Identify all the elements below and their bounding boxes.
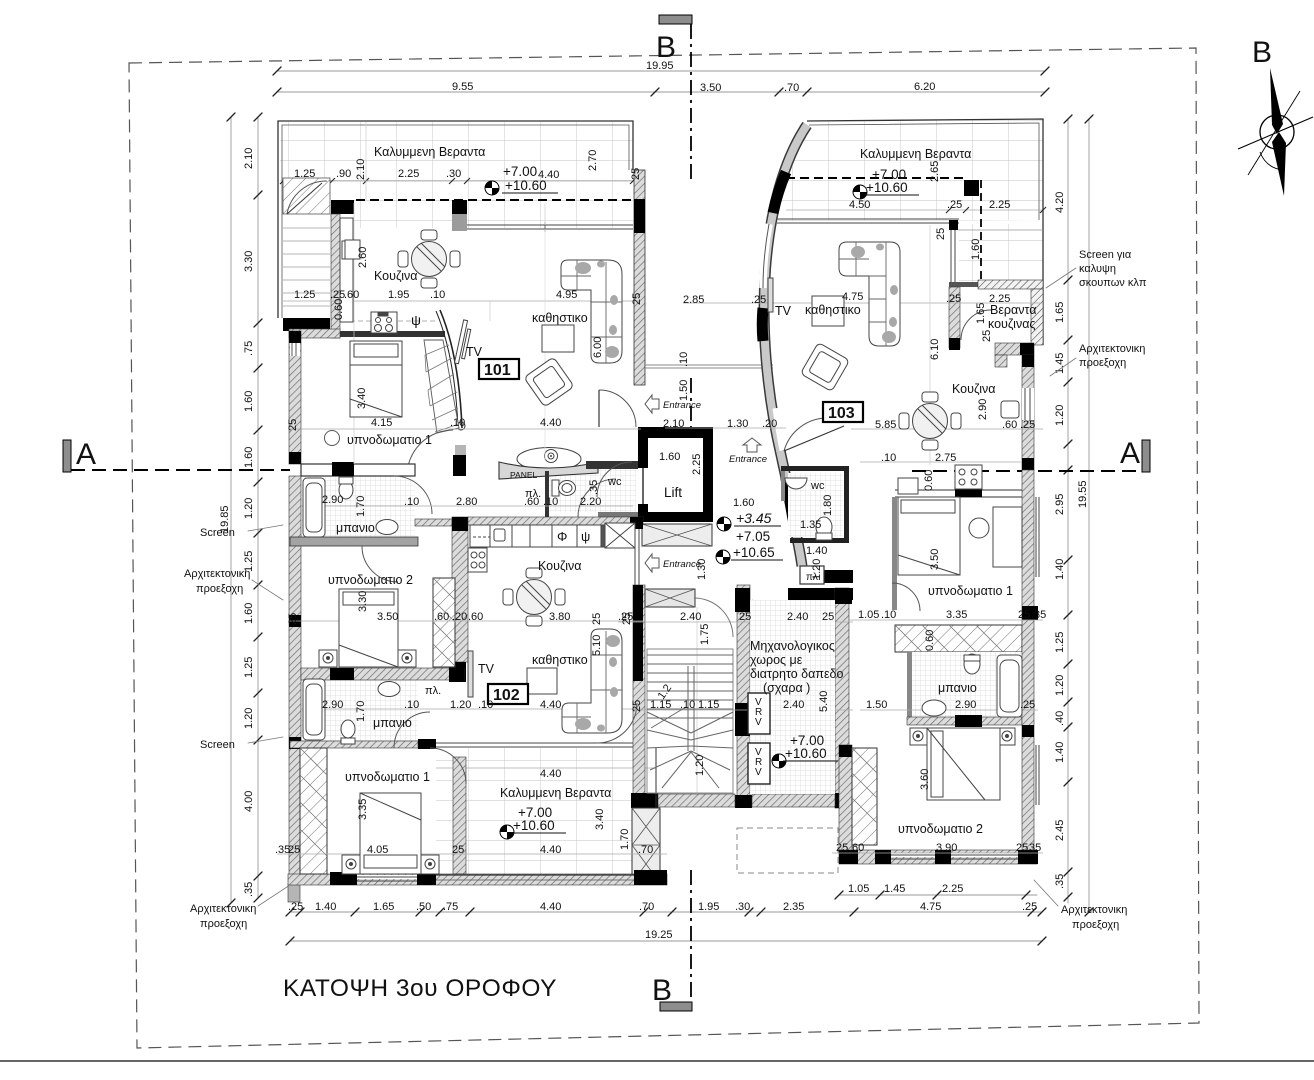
svg-text:Αρχιτεκτονικη: Αρχιτεκτονικη [190,903,256,915]
svg-text:Καλυμμενη Βεραντα: Καλυμμενη Βεραντα [374,145,485,159]
svg-text:1.30: 1.30 [727,418,748,430]
svg-text:5.85: 5.85 [875,419,896,431]
svg-text:3.40: 3.40 [356,388,368,409]
svg-text:.60: .60 [524,496,539,508]
svg-text:.50: .50 [416,901,431,913]
svg-text:+10.60: +10.60 [785,746,827,761]
svg-text:προεξοχη: προεξοχη [1079,357,1126,369]
svg-text:wc: wc [607,476,622,488]
svg-text:2.20: 2.20 [580,496,601,508]
svg-text:Entrance: Entrance [729,454,767,465]
svg-text:0.60: 0.60 [923,470,935,491]
svg-text:1.35: 1.35 [800,519,821,531]
svg-text:.20: .20 [762,418,777,430]
svg-text:35: 35 [1029,842,1041,854]
svg-text:2.10: 2.10 [663,418,684,430]
svg-text:1.40: 1.40 [1054,559,1066,580]
svg-text:.10: .10 [680,699,695,711]
svg-text:.35: .35 [243,882,255,897]
svg-text:.40: .40 [1054,711,1066,726]
svg-text:3.60: 3.60 [919,769,931,790]
svg-text:προεξοχη: προεξοχη [196,583,243,595]
svg-text:1.60: 1.60 [659,451,680,463]
svg-text:1.75: 1.75 [699,624,711,645]
svg-text:.25: .25 [1022,901,1037,913]
svg-text:3.40: 3.40 [594,809,606,830]
svg-text:1.70: 1.70 [355,701,367,722]
svg-text:2.80: 2.80 [456,496,477,508]
svg-text:102: 102 [493,687,520,704]
svg-text:2.40: 2.40 [680,611,701,623]
svg-text:.30: .30 [446,168,461,180]
svg-text:υπνοδωματιο 1: υπνοδωματιο 1 [347,433,432,447]
svg-text:.35: .35 [588,480,600,495]
svg-text:καθηστικο: καθηστικο [805,303,861,317]
svg-text:1.45: 1.45 [884,883,905,895]
svg-text:25: 25 [935,228,947,240]
svg-text:1.25: 1.25 [243,657,255,678]
svg-text:Κουζινα: Κουζινα [952,382,996,396]
svg-text:+7.05: +7.05 [736,529,770,544]
svg-text:.35: .35 [1031,609,1046,621]
svg-text:πλ.: πλ. [425,685,441,697]
svg-text:.60: .60 [434,611,449,623]
svg-text:19.55: 19.55 [1077,480,1089,508]
svg-text:25: 25 [288,844,300,856]
svg-text:1.20: 1.20 [1054,675,1066,696]
svg-text:.10: .10 [881,609,896,621]
svg-text:9.55: 9.55 [452,81,473,93]
svg-text:Screen για: Screen για [1079,249,1132,261]
svg-text:μπανιο: μπανιο [373,716,412,730]
svg-text:.60: .60 [1002,419,1017,431]
svg-text:A: A [76,438,96,471]
svg-text:Μηχανολογικος: Μηχανολογικος [750,639,835,653]
svg-text:μπανιο: μπανιο [938,681,977,695]
svg-text:ψ: ψ [581,529,590,544]
svg-text:1.40: 1.40 [315,901,336,913]
svg-text:1.20: 1.20 [1054,405,1066,426]
svg-text:2.40: 2.40 [783,699,804,711]
svg-text:ψ: ψ [411,312,421,328]
svg-text:ΚΑΤΟΨΗ 3ου ΟΡΟΦΟΥ: ΚΑΤΟΨΗ 3ου ΟΡΟΦΟΥ [283,975,557,1002]
svg-text:.60: .60 [468,611,483,623]
svg-text:Βεραντα: Βεραντα [990,303,1036,317]
svg-text:1.50: 1.50 [866,699,887,711]
svg-text:.25: .25 [946,293,961,305]
svg-text:+10.60: +10.60 [505,178,547,193]
svg-text:Κουζινα: Κουζινα [538,559,582,573]
svg-text:2.25: 2.25 [691,454,703,475]
svg-text:2.75: 2.75 [935,452,956,464]
svg-text:4.15: 4.15 [371,417,392,429]
svg-text:.25: .25 [751,294,766,306]
svg-text:25: 25 [739,611,751,623]
svg-text:.75: .75 [243,341,255,356]
svg-text:+10.60: +10.60 [866,180,908,195]
svg-text:V: V [755,717,762,728]
svg-text:σκουπων κλπ: σκουπων κλπ [1079,277,1147,289]
svg-text:1.25: 1.25 [294,168,315,180]
svg-text:.25: .25 [618,611,633,623]
svg-text:1.95: 1.95 [698,901,719,913]
svg-text:1.50: 1.50 [678,380,690,401]
svg-text:4.05: 4.05 [367,844,388,856]
svg-text:+3.45: +3.45 [736,510,772,526]
svg-text:.25: .25 [288,901,303,913]
svg-text:καθηστικο: καθηστικο [532,311,588,325]
svg-text:3.80: 3.80 [549,611,570,623]
svg-text:PANEL: PANEL [510,470,538,480]
svg-text:προεξοχη: προεξοχη [1072,919,1119,931]
svg-text:προεξοχη: προεξοχη [200,918,247,930]
svg-text:2.65: 2.65 [929,161,941,182]
svg-text:1.05: 1.05 [858,609,879,621]
svg-text:25: 25 [1016,842,1028,854]
svg-text:3.35: 3.35 [357,799,369,820]
svg-text:1.25: 1.25 [294,289,315,301]
svg-text:.10: .10 [478,699,493,711]
svg-text:.70: .70 [638,844,653,856]
svg-text:1.80: 1.80 [822,495,834,516]
svg-text:Καλυμμενη Βεραντα: Καλυμμενη Βεραντα [860,147,971,161]
svg-text:0.60: 0.60 [333,299,345,320]
svg-text:25: 25 [981,330,993,342]
svg-text:25: 25 [1018,609,1030,621]
svg-text:3.30: 3.30 [357,591,369,612]
svg-text:1.60: 1.60 [243,603,255,624]
svg-text:3.50: 3.50 [700,82,721,94]
svg-text:2.90: 2.90 [322,699,343,711]
svg-text:TV: TV [466,345,483,359]
svg-text:υπνοδωματιο 2: υπνοδωματιο 2 [898,822,983,836]
svg-text:2.90: 2.90 [977,399,989,420]
svg-text:B: B [656,31,676,64]
svg-text:0.60: 0.60 [924,630,936,651]
svg-text:1.65: 1.65 [373,901,394,913]
svg-text:25: 25 [591,613,603,625]
svg-text:(σχαρα ): (σχαρα ) [763,681,810,695]
svg-text:.60: .60 [849,842,864,854]
svg-text:3.50: 3.50 [377,611,398,623]
svg-text:πλ.: πλ. [806,572,821,583]
svg-text:4.40: 4.40 [540,417,561,429]
svg-text:καλυψη: καλυψη [1079,263,1116,275]
svg-text:.10: .10 [404,699,419,711]
svg-text:2.95: 2.95 [1054,494,1066,515]
svg-text:2.25: 2.25 [989,293,1010,305]
svg-text:3.90: 3.90 [936,842,957,854]
svg-text:.90: .90 [336,168,351,180]
svg-text:25: 25 [287,419,299,431]
svg-text:4.40: 4.40 [540,768,561,780]
svg-text:Entrance: Entrance [663,559,701,570]
svg-text:.30: .30 [735,901,750,913]
svg-text:.10: .10 [678,352,690,367]
svg-text:Αρχιτεκτονικη: Αρχιτεκτονικη [1061,904,1127,916]
svg-text:3.30: 3.30 [243,251,255,272]
svg-text:25: 25 [631,700,643,712]
svg-text:υπνοδωματιο 1: υπνοδωματιο 1 [345,770,430,784]
svg-text:5.10: 5.10 [591,635,603,656]
svg-text:.10: .10 [430,289,445,301]
svg-text:1.65: 1.65 [1054,302,1066,323]
svg-text:25: 25 [287,613,299,625]
svg-text:+10.60: +10.60 [513,818,555,833]
svg-text:Καλυμμενη Βεραντα: Καλυμμενη Βεραντα [500,786,611,800]
svg-text:4.95: 4.95 [556,289,577,301]
svg-text:5.40: 5.40 [818,691,830,712]
svg-text:2.10: 2.10 [355,159,367,180]
svg-text:Screen: Screen [200,739,235,751]
svg-text:A: A [1120,437,1140,470]
svg-text:4.75: 4.75 [842,291,863,303]
svg-text:wc: wc [810,480,825,492]
svg-text:1.65: 1.65 [975,303,987,324]
svg-text:1.60: 1.60 [243,447,255,468]
svg-text:.70: .70 [639,901,654,913]
svg-text:25: 25 [630,168,642,180]
svg-text:1.60: 1.60 [243,391,255,412]
svg-text:2.25: 2.25 [989,199,1010,211]
svg-text:TV: TV [775,304,792,318]
svg-text:1.15: 1.15 [698,699,719,711]
svg-text:2.60: 2.60 [357,247,369,268]
svg-text:25: 25 [452,844,464,856]
svg-text:6.20: 6.20 [914,81,935,93]
svg-text:3.35: 3.35 [946,609,967,621]
svg-text:25: 25 [836,842,848,854]
svg-text:.10: .10 [404,496,419,508]
svg-text:+7.00: +7.00 [503,164,537,179]
svg-text:μπανιο: μπανιο [336,521,375,535]
svg-text:2.90: 2.90 [955,699,976,711]
svg-text:1.60: 1.60 [733,497,754,509]
svg-text:Entrance: Entrance [663,400,701,411]
svg-text:4.40: 4.40 [540,901,561,913]
svg-text:3.50: 3.50 [929,549,941,570]
svg-text:25: 25 [631,293,643,305]
svg-text:1.40: 1.40 [1054,742,1066,763]
svg-text:1.25: 1.25 [1054,632,1066,653]
svg-text:χωρος με: χωρος με [750,653,803,667]
svg-text:2.45: 2.45 [1054,820,1066,841]
svg-text:Screen: Screen [200,527,235,539]
svg-text:4.40: 4.40 [540,844,561,856]
svg-text:101: 101 [484,362,511,379]
svg-text:2.40: 2.40 [787,611,808,623]
svg-text:1.95: 1.95 [388,289,409,301]
svg-text:1.20: 1.20 [243,708,255,729]
svg-text:.70: .70 [784,82,799,94]
svg-text:.25: .25 [947,199,962,211]
svg-text:2.70: 2.70 [587,150,599,171]
svg-text:2.90: 2.90 [322,494,343,506]
svg-text:Κουζινα: Κουζινα [374,269,418,283]
svg-text:Αρχιτεκτονικη: Αρχιτεκτονικη [184,568,250,580]
svg-text:B: B [1252,36,1272,69]
svg-text:+10.65: +10.65 [733,545,775,560]
svg-text:4.20: 4.20 [1054,192,1066,213]
svg-text:1.70: 1.70 [619,829,631,850]
svg-text:κουζινας: κουζινας [988,317,1035,331]
svg-text:4.00: 4.00 [243,791,255,812]
svg-text:Αρχιτεκτονικη: Αρχιτεκτονικη [1079,343,1145,355]
svg-text:Lift: Lift [664,485,682,500]
svg-text:6.10: 6.10 [929,339,941,360]
svg-text:καθηστικο: καθηστικο [532,653,588,667]
svg-text:.35: .35 [1054,874,1066,889]
svg-text:1.70: 1.70 [355,496,367,517]
svg-text:2.25: 2.25 [398,168,419,180]
svg-text:.75: .75 [443,901,458,913]
svg-text:103: 103 [828,405,855,422]
svg-text:2.10: 2.10 [243,148,255,169]
svg-text:2.35: 2.35 [783,901,804,913]
svg-text:6.00: 6.00 [592,337,604,358]
svg-text:.10: .10 [450,417,465,429]
svg-text:1.15: 1.15 [650,699,671,711]
svg-text:1.60: 1.60 [970,239,982,260]
svg-text:1.20: 1.20 [450,699,471,711]
svg-text:25: 25 [822,611,834,623]
svg-text:.25: .25 [1020,699,1035,711]
svg-text:2.25: 2.25 [942,883,963,895]
svg-text:.10: .10 [881,452,896,464]
svg-text:.10: .10 [543,496,558,508]
svg-text:διατρητο δαπεδο: διατρητο δαπεδο [750,667,843,681]
svg-text:1.20: 1.20 [243,498,255,519]
svg-text:Φ: Φ [557,529,567,544]
svg-text:υπνοδωματιο 1: υπνοδωματιο 1 [928,584,1013,598]
svg-text:1.45: 1.45 [1054,353,1066,374]
svg-text:V: V [755,767,762,778]
svg-text:4.40: 4.40 [540,699,561,711]
svg-text:4.50: 4.50 [849,199,870,211]
svg-text:.60: .60 [344,289,359,301]
svg-text:.25: .25 [1020,419,1035,431]
svg-text:TV: TV [478,662,495,676]
svg-text:.20: .20 [452,611,467,623]
svg-text:1.40: 1.40 [806,545,827,557]
svg-text:1.05: 1.05 [848,883,869,895]
svg-text:4.75: 4.75 [920,901,941,913]
svg-text:1.20: 1.20 [694,755,706,776]
svg-text:19.25: 19.25 [645,929,673,941]
svg-text:υπνοδωματιο 2: υπνοδωματιο 2 [328,573,413,587]
svg-text:2.85: 2.85 [683,294,704,306]
